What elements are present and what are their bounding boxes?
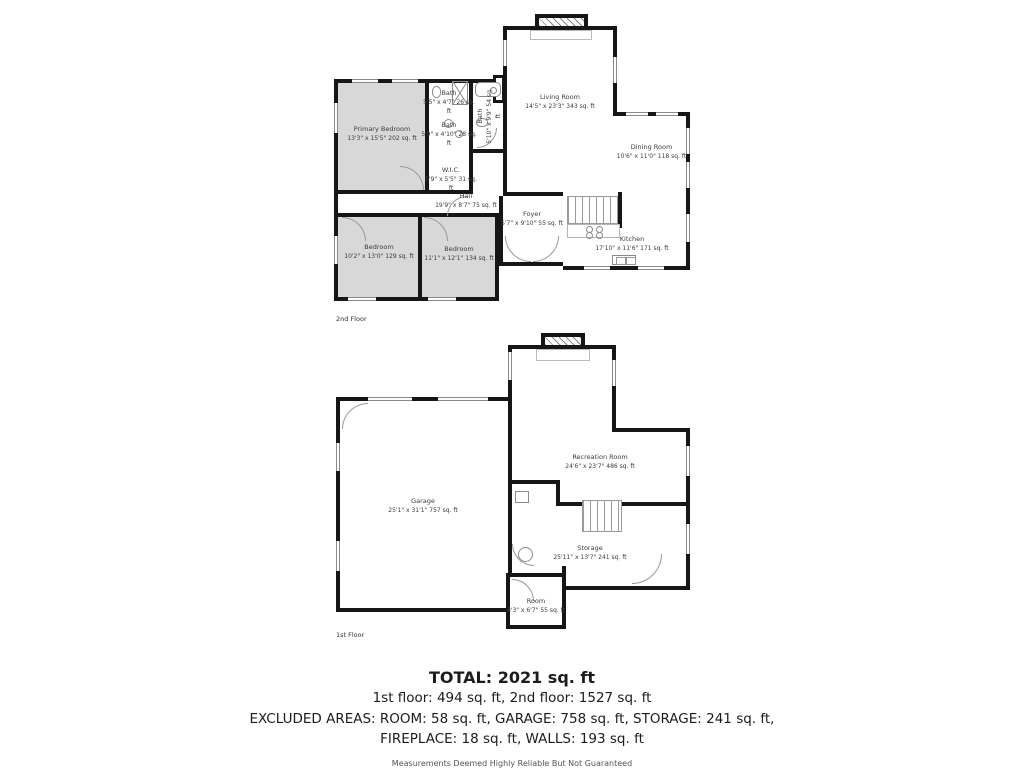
utility-box <box>515 491 529 503</box>
stairs-first-floor <box>582 500 622 532</box>
room-label-small-room: Room8'3" x 6'7" 55 sq. ft <box>506 596 566 615</box>
stairs-second-floor <box>567 196 618 224</box>
window <box>584 266 610 270</box>
room-label-kitchen: Kitchen17'10" x 11'6" 171 sq. ft <box>577 234 687 253</box>
window <box>392 79 418 83</box>
floor-name-1st: 1st Floor <box>336 631 364 639</box>
window <box>352 79 378 83</box>
window <box>368 397 412 401</box>
summary-floors: 1st floor: 494 sq. ft, 2nd floor: 1527 s… <box>0 690 1024 706</box>
floor-name-2nd: 2nd Floor <box>336 315 367 323</box>
window <box>626 112 648 116</box>
window <box>656 112 678 116</box>
room-label-wic: W.I.C.5'9" x 5'5" 31 sq. ft <box>425 165 477 194</box>
window <box>503 40 507 66</box>
fireplace-chimney <box>535 14 588 30</box>
wall-segment <box>612 428 690 432</box>
window <box>686 162 690 188</box>
window <box>508 352 512 380</box>
wall-segment <box>562 566 566 590</box>
summary-block: TOTAL: 2021 sq. ft 1st floor: 494 sq. ft… <box>0 668 1024 768</box>
summary-total: TOTAL: 2021 sq. ft <box>0 668 1024 687</box>
summary-excluded-2: FIREPLACE: 18 sq. ft, WALLS: 193 sq. ft <box>0 731 1024 747</box>
fireplace-hearth <box>530 30 592 40</box>
room-label-garage: Garage25'1" x 31'1" 757 sq. ft <box>348 496 498 515</box>
kitchen-sink <box>612 255 636 265</box>
window <box>686 524 690 554</box>
room-label-bath-side: Bath5'10" x 9'9" 54 sq. ft <box>469 88 509 144</box>
fireplace-hearth <box>536 349 590 361</box>
wall-segment <box>562 586 690 590</box>
window <box>686 446 690 476</box>
wall-segment <box>556 502 582 506</box>
summary-disclaimer: Measurements Deemed Highly Reliable But … <box>0 759 1024 768</box>
wall-segment <box>512 480 560 484</box>
room-label-foyer: Foyer5'7" x 9'10" 55 sq. ft <box>499 209 565 228</box>
room-label-recreation-room: Recreation Room24'6" x 23'7" 486 sq. ft <box>530 452 670 471</box>
window <box>638 266 664 270</box>
room-label-bedroom-right: Bedroom11'1" x 12'1" 134 sq. ft <box>420 244 498 263</box>
room-label-hall: Hall19'9" x 8'7" 75 sq. ft <box>428 191 504 210</box>
window <box>348 297 376 301</box>
window <box>613 57 617 83</box>
summary-excluded-1: EXCLUDED AREAS: ROOM: 58 sq. ft, GARAGE:… <box>0 711 1024 727</box>
window <box>612 360 616 386</box>
wall-segment <box>618 192 622 228</box>
fireplace-chimney <box>541 333 585 349</box>
room-label-living-room: Living Room14'5" x 23'3" 343 sq. ft <box>505 92 615 111</box>
floor-plan-canvas: Primary Bedroom13'3" x 15'5" 202 sq. ft … <box>0 0 1024 768</box>
room-label-dining-room: Dining Room10'6" x 11'0" 118 sq. ft <box>615 142 688 161</box>
window <box>336 541 340 571</box>
window <box>336 443 340 471</box>
wall-segment <box>622 502 690 506</box>
room-label-storage: Storage25'11" x 13'7" 241 sq. ft <box>520 543 660 562</box>
window <box>438 397 488 401</box>
room-label-primary-bedroom: Primary Bedroom13'3" x 15'5" 202 sq. ft <box>336 124 428 143</box>
window <box>428 297 456 301</box>
room-label-bedroom-left: Bedroom10'2" x 13'0" 129 sq. ft <box>336 242 422 261</box>
